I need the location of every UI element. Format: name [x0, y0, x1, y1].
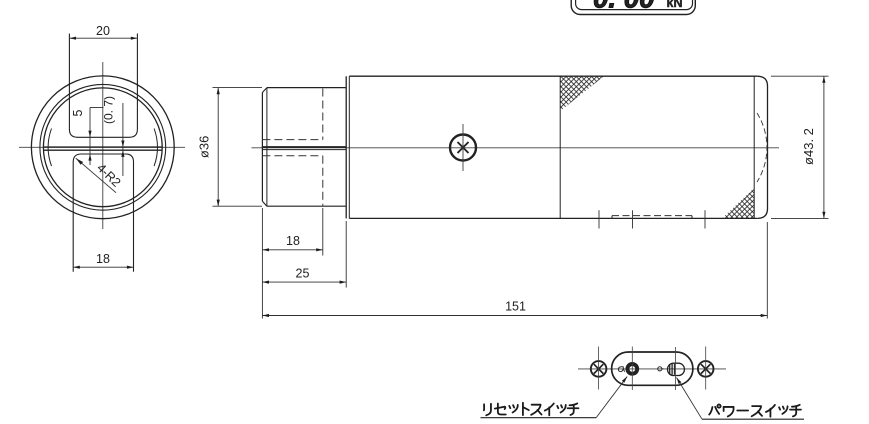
svg-text:151: 151 — [505, 300, 526, 314]
svg-text:18: 18 — [96, 252, 110, 266]
svg-text:5: 5 — [71, 109, 85, 116]
svg-text:ø43. 2: ø43. 2 — [801, 128, 816, 165]
svg-text:20: 20 — [96, 24, 110, 38]
svg-text:25: 25 — [296, 266, 310, 280]
svg-text:18: 18 — [286, 234, 300, 248]
svg-text:(0. 7): (0. 7) — [102, 96, 116, 124]
svg-text:kN: kN — [667, 0, 683, 10]
svg-text:ø36: ø36 — [197, 136, 212, 158]
svg-text:0. 00: 0. 00 — [593, 0, 655, 14]
